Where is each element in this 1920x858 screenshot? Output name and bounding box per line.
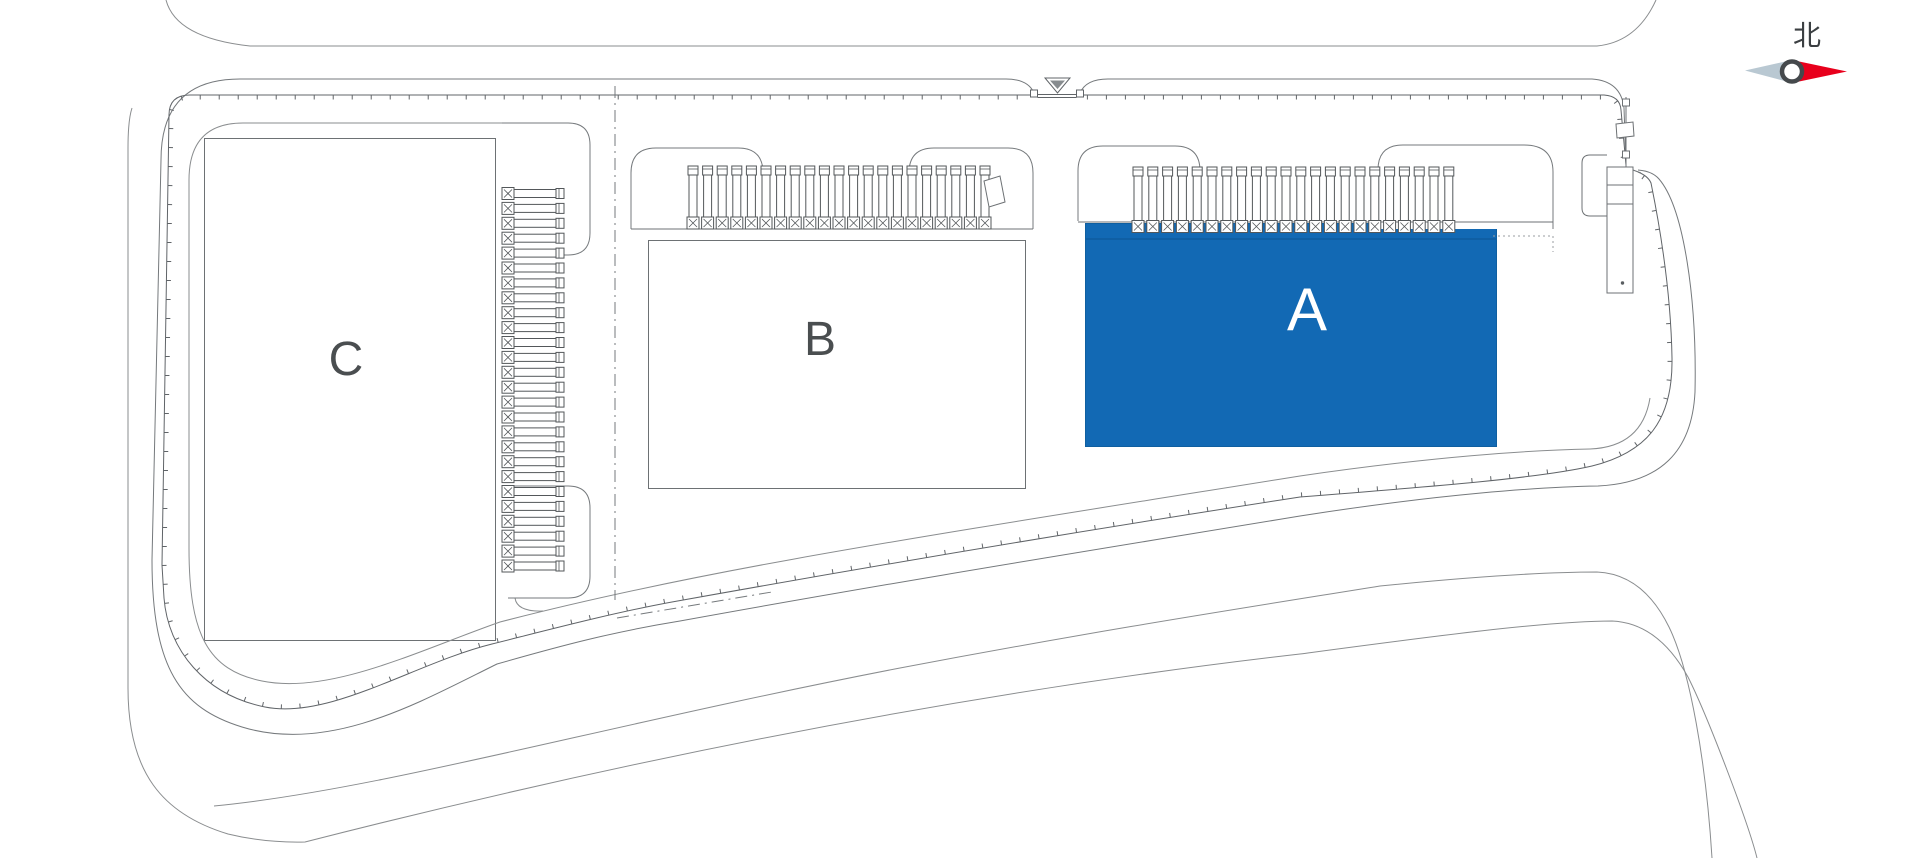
docks-building-b: [687, 166, 991, 229]
canopy-c-bottom: [508, 486, 590, 598]
building-b[interactable]: B: [648, 240, 1026, 489]
gate-marker-icon: [1045, 78, 1070, 93]
gatehouse: [1607, 167, 1633, 293]
gate-marker-inner: [1050, 81, 1065, 90]
canopy-a-right: [1378, 145, 1553, 229]
top-street-edge: [166, 0, 1656, 46]
ramp-block: [984, 176, 1005, 207]
canopy-c-top: [502, 123, 590, 255]
site-gate: [1031, 78, 1084, 98]
building-a[interactable]: A: [1085, 223, 1497, 447]
building-c-label: C: [329, 336, 364, 384]
gatehouse-area: [1582, 97, 1641, 293]
building-c[interactable]: C: [204, 138, 496, 641]
site-plan: C B A: [0, 0, 1920, 858]
docks-building-c: [502, 188, 564, 573]
canopy-b-right: [909, 148, 1033, 229]
building-b-label: B: [804, 316, 836, 364]
compass: 北: [1735, 14, 1865, 99]
building-a-label: A: [1287, 280, 1327, 340]
gatehouse-pad: [1582, 155, 1607, 216]
canopy-b-left: [631, 148, 763, 229]
gate-post: [1031, 90, 1038, 97]
canopy-a-left: [1078, 146, 1200, 221]
gate-post: [1077, 90, 1084, 97]
compass-needle-icon: [1735, 54, 1860, 94]
north-label: 北: [1793, 14, 1821, 54]
apron-dotted-edges: [1493, 236, 1553, 252]
